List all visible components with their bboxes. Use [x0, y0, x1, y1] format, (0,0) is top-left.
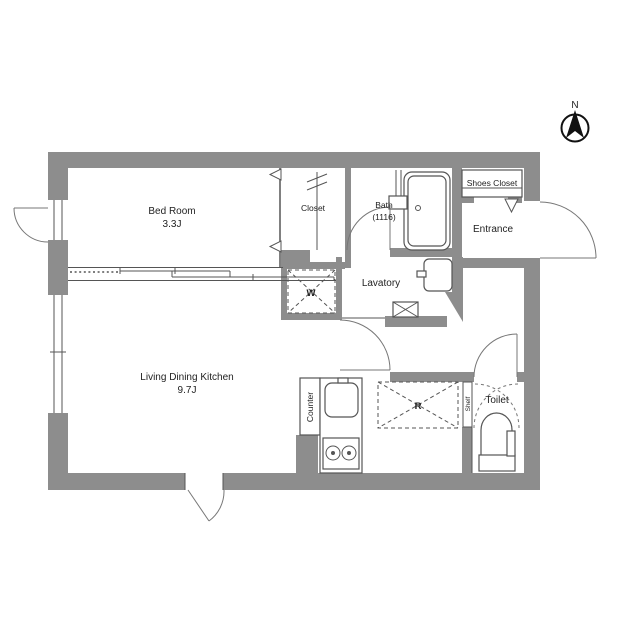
kitchen-sink [325, 383, 358, 417]
counter-label: Counter [305, 392, 315, 422]
wall-entrance-stub-left [462, 197, 474, 203]
wall-w-left [281, 262, 287, 318]
toilet-label: Toilet [485, 395, 509, 406]
compass-north-label: N [571, 100, 578, 111]
lavatory-label: Lavatory [362, 278, 400, 289]
access-panel [393, 302, 418, 317]
wall-closet-bath [345, 168, 351, 268]
closet-label: Closet [301, 203, 326, 213]
wall-counter-step [296, 435, 318, 473]
wall-top [48, 152, 540, 168]
front-door-swing-arc [540, 202, 596, 258]
wall-entrance-bottom [460, 258, 524, 268]
ldk-door-swing-arc [209, 490, 224, 521]
bathtub-inner [408, 176, 446, 246]
ldk-label: Living Dining Kitchen [140, 372, 233, 383]
wall-w-bottom [281, 313, 336, 320]
wall-right-upper [524, 152, 540, 201]
bedroom-window-swing-arc [14, 208, 48, 242]
wall-bottom-right [223, 473, 540, 490]
wall-shelf-block [462, 427, 472, 473]
wall-left-mid [48, 240, 68, 295]
hall-doors [340, 320, 517, 377]
toilet-paper-holder [507, 431, 515, 456]
closet-door-mark-top [270, 169, 281, 180]
wash-basin-handle [417, 271, 426, 277]
bath-detail [347, 170, 450, 250]
entrance-step-mark [505, 199, 518, 212]
compass-needle [566, 110, 584, 138]
wash-basin [424, 259, 452, 291]
bedroom-label: Bed Room [148, 206, 195, 217]
wall-w-top [281, 262, 345, 269]
bedroom-ldk-sliding-partition [68, 267, 336, 281]
stove [323, 438, 359, 469]
closet-door-mark-bottom [270, 241, 281, 252]
toilet-door-swing-arc [474, 334, 517, 377]
ldk-size-label: 9.7J [178, 385, 197, 396]
wall-lavatory-bottom [385, 316, 447, 327]
bedroom-window [14, 200, 68, 242]
bath-label: Bath [375, 200, 393, 210]
ldk-hall-door-swing-arc [340, 320, 390, 370]
wall-left-upper [48, 152, 68, 200]
washing-machine-label: W [307, 288, 316, 299]
floor-plan-drawing: N Bed Room 3.3J Closet Bath (1116) Shoes… [0, 0, 639, 640]
kitchen-faucet [338, 378, 348, 383]
shelf-label: Shelf [465, 396, 472, 411]
toilet-tank [479, 455, 515, 471]
wall-bottom-left [48, 473, 185, 490]
bedroom-window-gap [48, 200, 68, 240]
wall-bath-entrance [452, 168, 462, 258]
wall-w-lavatory [336, 257, 342, 320]
compass: N [562, 100, 589, 142]
shoes-closet-label: Shoes Closet [467, 178, 518, 188]
ldk-window [48, 295, 68, 413]
ldk-window-gap [48, 295, 68, 413]
floor-plan-page: N Bed Room 3.3J Closet Bath (1116) Shoes… [0, 0, 639, 640]
entrance-detail [505, 199, 596, 258]
wall-right-lower [524, 258, 540, 490]
wall-hall-bottom [390, 372, 474, 382]
bath-size-label: (1116) [372, 212, 395, 222]
refrigerator-label: R [415, 401, 422, 412]
entrance-label: Entrance [473, 224, 513, 235]
ldk-door-leaf [188, 490, 209, 521]
bedroom-size-label: 3.3J [163, 219, 182, 230]
wall-toilet-stub [517, 372, 524, 382]
ldk-exterior-door [185, 473, 224, 521]
ldk-door-gap [185, 473, 223, 490]
